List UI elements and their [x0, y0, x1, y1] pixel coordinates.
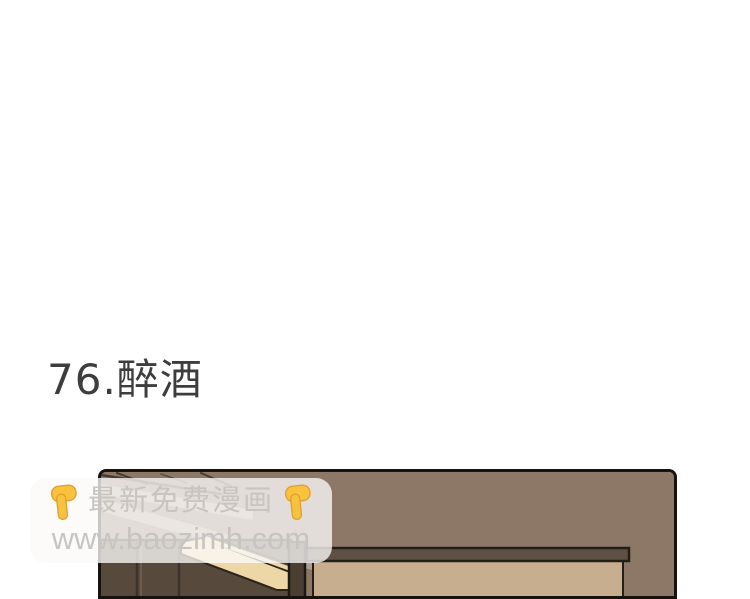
watermark-text: 最新免费漫画 [88, 483, 274, 521]
comic-reader-page: { "chapter": { "title": "76.醉酒" }, "wate… [0, 0, 750, 586]
chapter-title: 76.醉酒 [47, 357, 203, 403]
pointing-down-icon [47, 483, 81, 521]
pointing-down-icon [281, 483, 315, 521]
beige-furniture [307, 548, 629, 596]
watermark-url: www.baozimh.com [52, 521, 310, 557]
watermark-overlay: 最新免费漫画 www.baozimh.com [30, 478, 332, 563]
watermark-row: 最新免费漫画 [47, 483, 315, 521]
rail-band [307, 548, 629, 561]
